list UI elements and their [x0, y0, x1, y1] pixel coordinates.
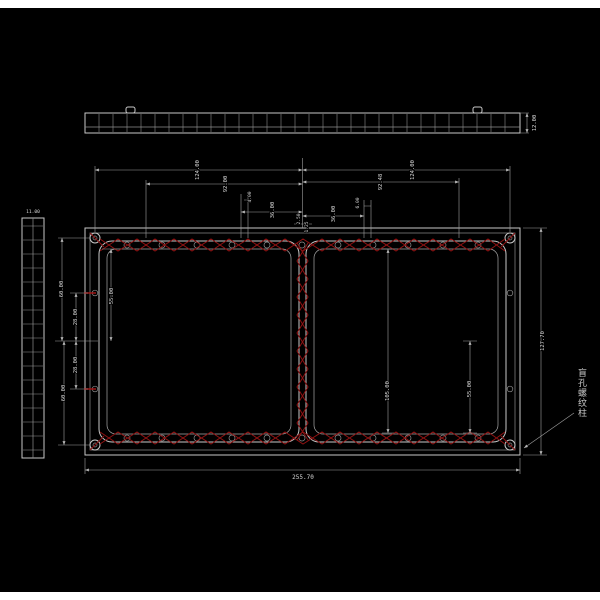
dim-28-top-label: 28.00 [73, 309, 79, 326]
dim-60-top-label: 60.00 [59, 281, 65, 298]
dim-36-left-label: 36.00 [270, 202, 276, 219]
dim-92-right-label: 92.48 [378, 174, 384, 191]
dim-center-a-label: 2.50 [296, 213, 302, 224]
dim-overall-width-label: 255.70 [292, 474, 314, 481]
front-view [84, 228, 520, 455]
cad-screenshot: 12.00 11.00 [0, 0, 600, 600]
dim-60-bottom-label: 60.00 [61, 385, 67, 402]
cad-drawing: 12.00 11.00 [0, 0, 600, 600]
screw-boss-bump-right [473, 107, 482, 113]
dim-124-right-label: 124.00 [410, 160, 416, 180]
dim-center-b-label: 1.25 [304, 221, 310, 232]
dim-left-profile-thickness-label: 11.00 [26, 209, 40, 215]
dim-105-right-label: 105.00 [385, 381, 391, 401]
dim-36-right-label: 36.00 [331, 206, 337, 223]
dim-28-bottom-label: 28.00 [73, 357, 79, 374]
dim-overall-height-label: 127.70 [540, 331, 546, 351]
dimension-lines [55, 158, 574, 474]
screw-boss-bump-left [126, 107, 135, 113]
blind-hole-boss-annotation: 盲孔螺纹柱 [576, 368, 586, 422]
dim-124-left-label: 124.00 [195, 160, 201, 180]
left-profile-view: 11.00 [22, 209, 44, 458]
right-cell-outer [306, 241, 506, 442]
right-cell-inner [314, 249, 498, 434]
dim-top-profile-thickness-label: 12.00 [532, 115, 538, 132]
annotation-leader-line [524, 413, 574, 448]
top-profile-view: 12.00 [85, 107, 538, 133]
left-cell-outer [99, 241, 299, 442]
dim-4-left-label: 4.00 [247, 191, 253, 202]
left-cell-inner [107, 249, 291, 434]
dim-55-left-label: 55.00 [109, 288, 115, 305]
dim-55-right-label: 55.00 [467, 381, 473, 398]
dim-6-right-label: 6.00 [355, 197, 361, 208]
dim-92-left-label: 92.00 [223, 176, 229, 193]
